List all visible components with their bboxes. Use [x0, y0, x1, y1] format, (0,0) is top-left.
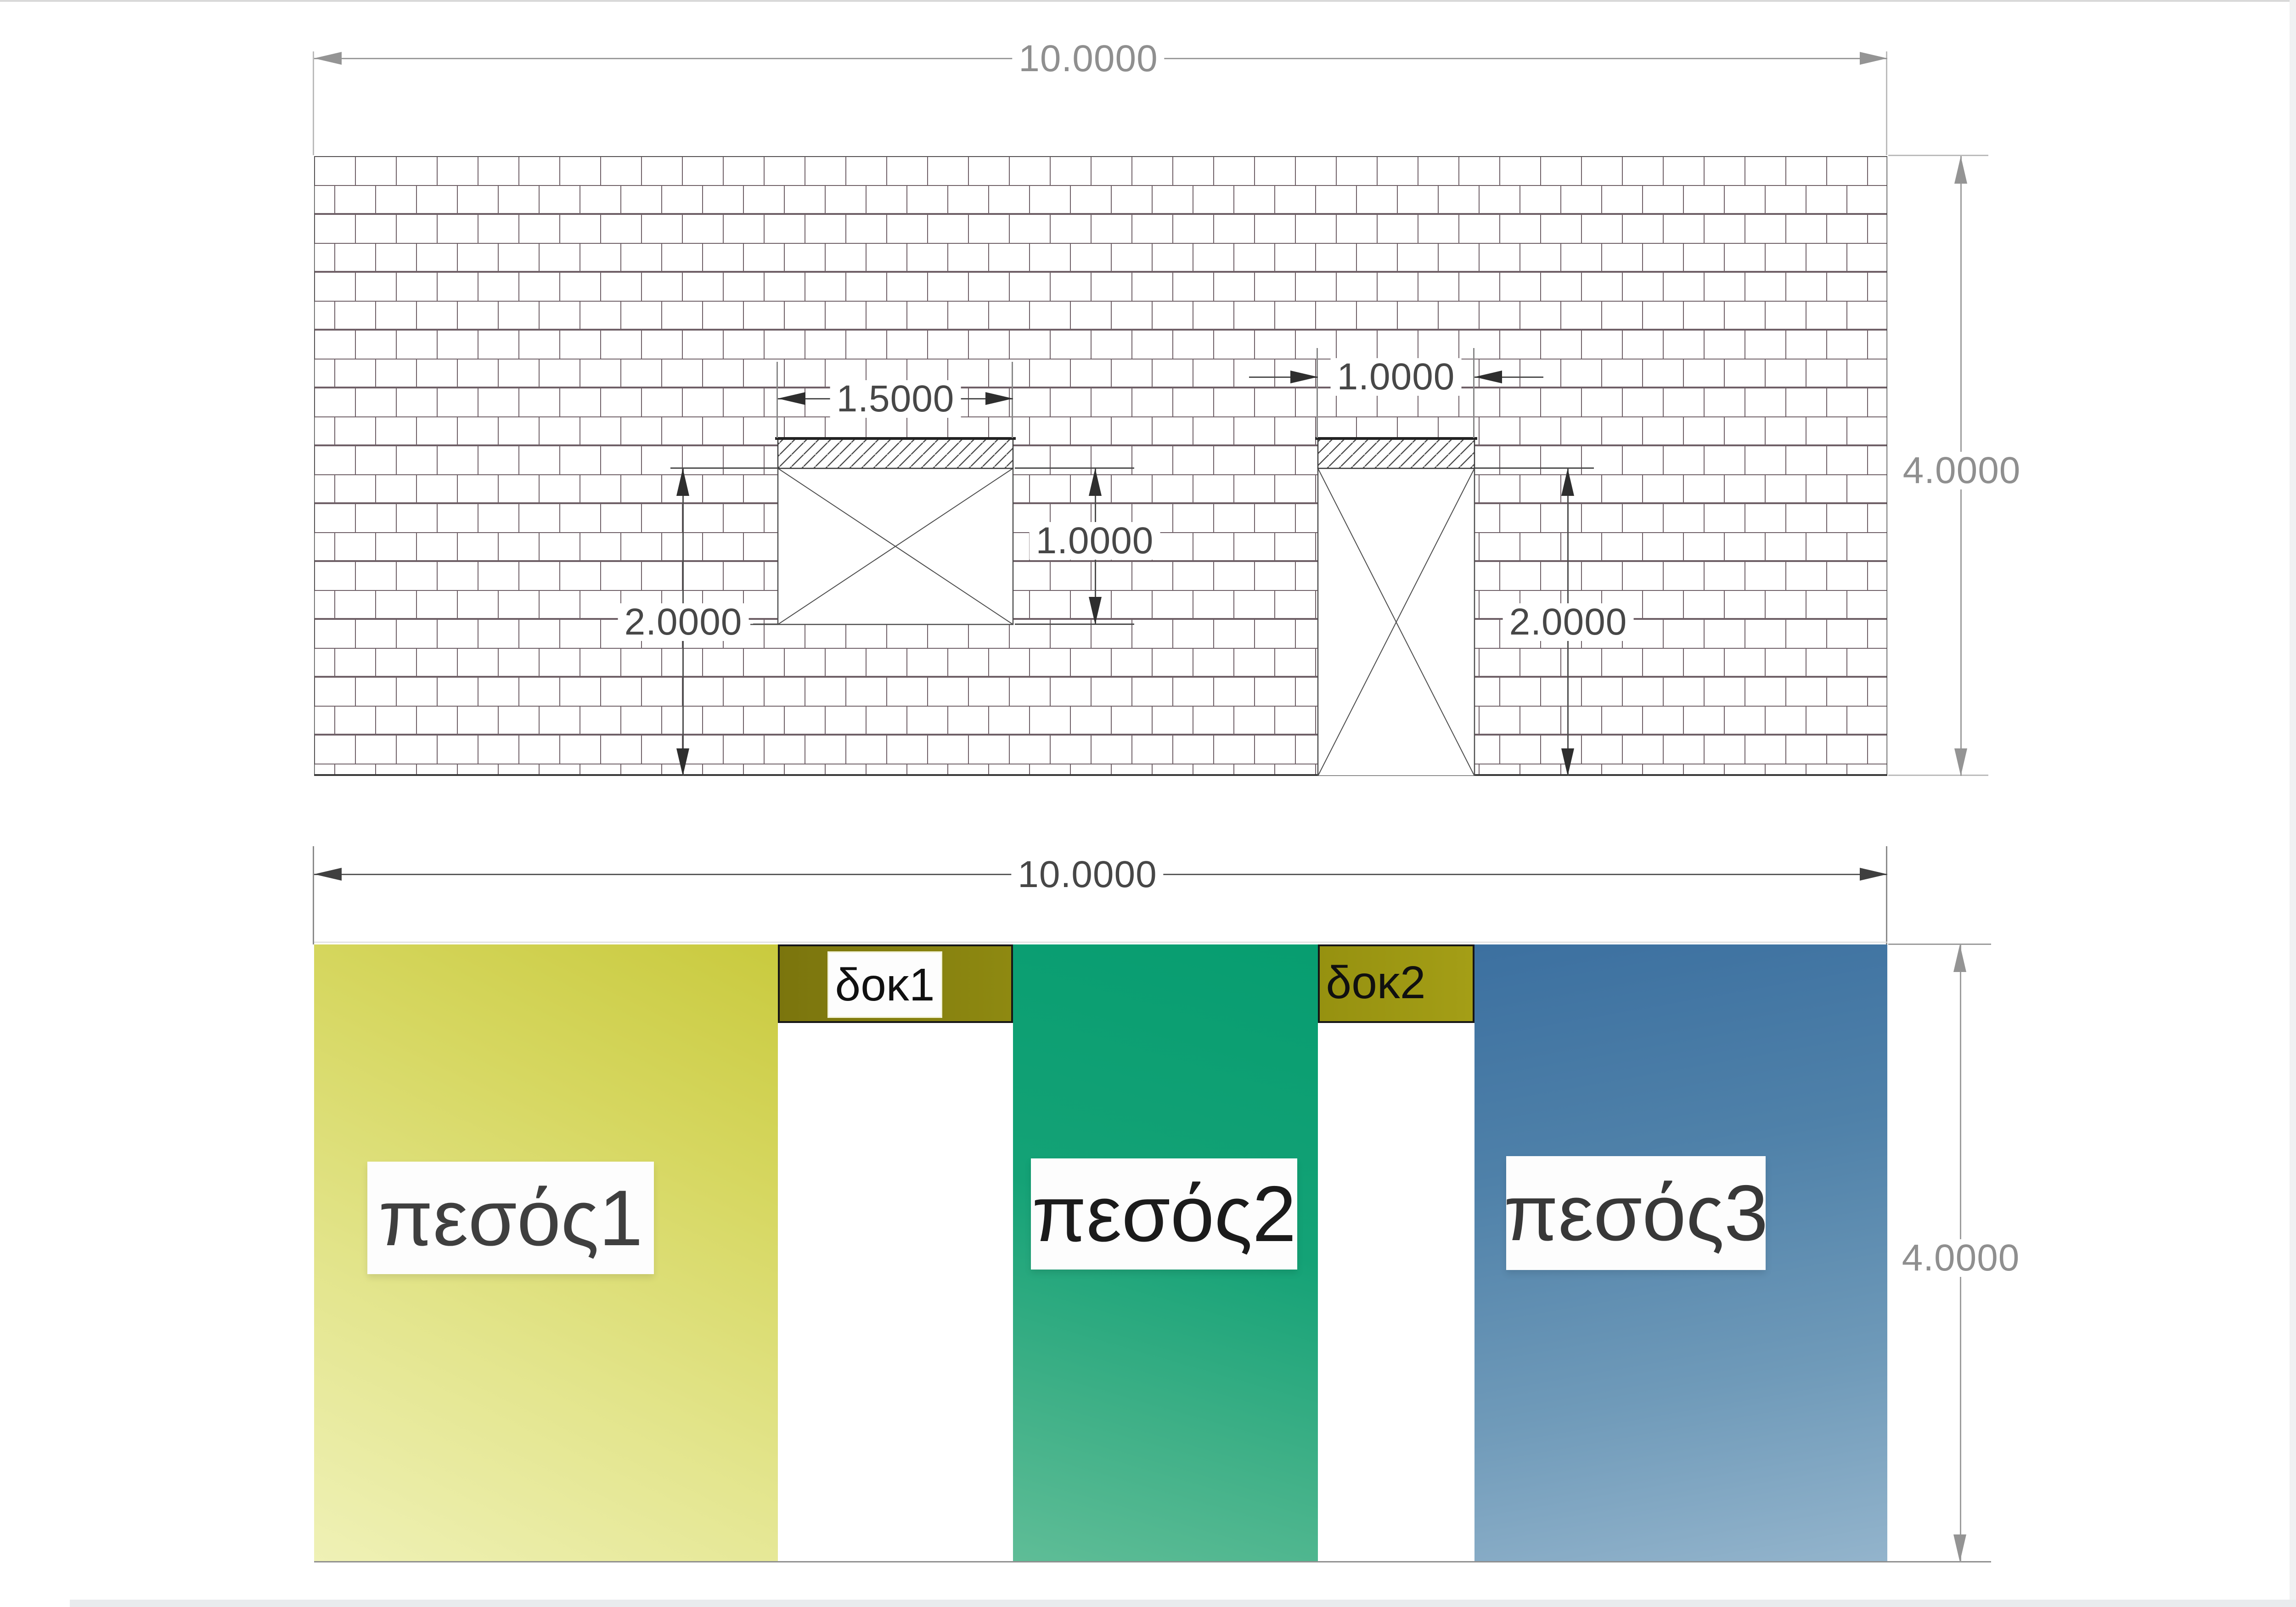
screen-right-strip	[2290, 0, 2296, 1607]
dim-wall-total-height[interactable]: 4.0000	[1896, 452, 2027, 489]
dim-arrow-down	[1953, 1534, 1966, 1562]
beam-1-label[interactable]: δοκ1	[829, 953, 941, 1017]
pier-1-label[interactable]: πεσός1	[367, 1162, 654, 1274]
dim-arrow-right	[1290, 371, 1318, 383]
pier-3-label[interactable]: πεσός3	[1506, 1156, 1766, 1270]
door-lintel-hatch[interactable]	[1315, 438, 1477, 468]
dim-arrow-right	[985, 392, 1013, 405]
dim-window-width[interactable]: 1.5000	[830, 380, 961, 418]
dim-ext-tick	[1015, 467, 1134, 469]
sill-tick	[753, 624, 778, 625]
wall-brick-pattern	[314, 156, 1887, 776]
dim-arrow-up	[1954, 156, 1967, 184]
dim-door-width[interactable]: 1.0000	[1331, 358, 1462, 396]
dim-ext-line	[1886, 846, 1887, 944]
dim-arrow-up	[676, 468, 689, 496]
dim-ext-tick	[1015, 624, 1134, 625]
dim-arrow-up	[1089, 468, 1102, 496]
dim-wall-total-width[interactable]: 10.0000	[1012, 40, 1164, 78]
dim-arrow-left	[778, 392, 805, 405]
band-top-line	[314, 942, 1887, 943]
screen-bottom-strip	[70, 1600, 2296, 1607]
drawing-canvas: 10.0000 4.0000 1.5000 1.0000 1.0000 2.00…	[0, 0, 2296, 1607]
dim-door-height[interactable]: 2.0000	[1503, 603, 1634, 641]
door-opening[interactable]	[1318, 468, 1474, 776]
dim-ext-line	[1317, 348, 1318, 438]
pier-2-label[interactable]: πεσός2	[1031, 1158, 1297, 1270]
dim-arrow-left	[314, 52, 342, 65]
dim-diagram-total-height[interactable]: 4.0000	[1896, 1239, 2026, 1277]
window-opening[interactable]	[750, 468, 1013, 624]
dim-ext-line	[1888, 944, 1991, 945]
window-lintel-hatch[interactable]	[775, 438, 1016, 468]
dim-window-top-to-base[interactable]: 2.0000	[618, 603, 749, 641]
dim-arrow-up	[1561, 468, 1574, 496]
screen-top-strip	[0, 0, 2296, 2]
dim-arrow-up	[1953, 944, 1966, 972]
dim-ext-line	[1886, 51, 1887, 155]
dim-window-height[interactable]: 1.0000	[1030, 522, 1160, 560]
dim-ext-line	[1888, 155, 1988, 156]
dim-diagram-total-width[interactable]: 10.0000	[1011, 856, 1163, 893]
dim-ext-line	[313, 846, 314, 944]
dim-arrow-left	[314, 868, 342, 881]
dim-ext-line	[313, 51, 314, 155]
dim-arrow-left	[1474, 371, 1502, 383]
dim-arrow-right	[1860, 868, 1887, 881]
dim-arrow-down	[676, 748, 689, 776]
band-bottom-line	[314, 1561, 1991, 1562]
dim-arrow-right	[1860, 52, 1887, 65]
dim-ext-line	[1473, 348, 1474, 438]
dim-arrow-down	[1954, 748, 1967, 776]
dim-arrow-down	[1561, 748, 1574, 776]
beam-2-label[interactable]: δοκ2	[1321, 961, 1431, 1005]
dim-arrow-down	[1089, 597, 1102, 624]
dim-ext-line	[1888, 775, 1988, 776]
dim-ext-tick	[1474, 467, 1594, 469]
wall-elevation-canvas[interactable]	[314, 156, 1887, 776]
